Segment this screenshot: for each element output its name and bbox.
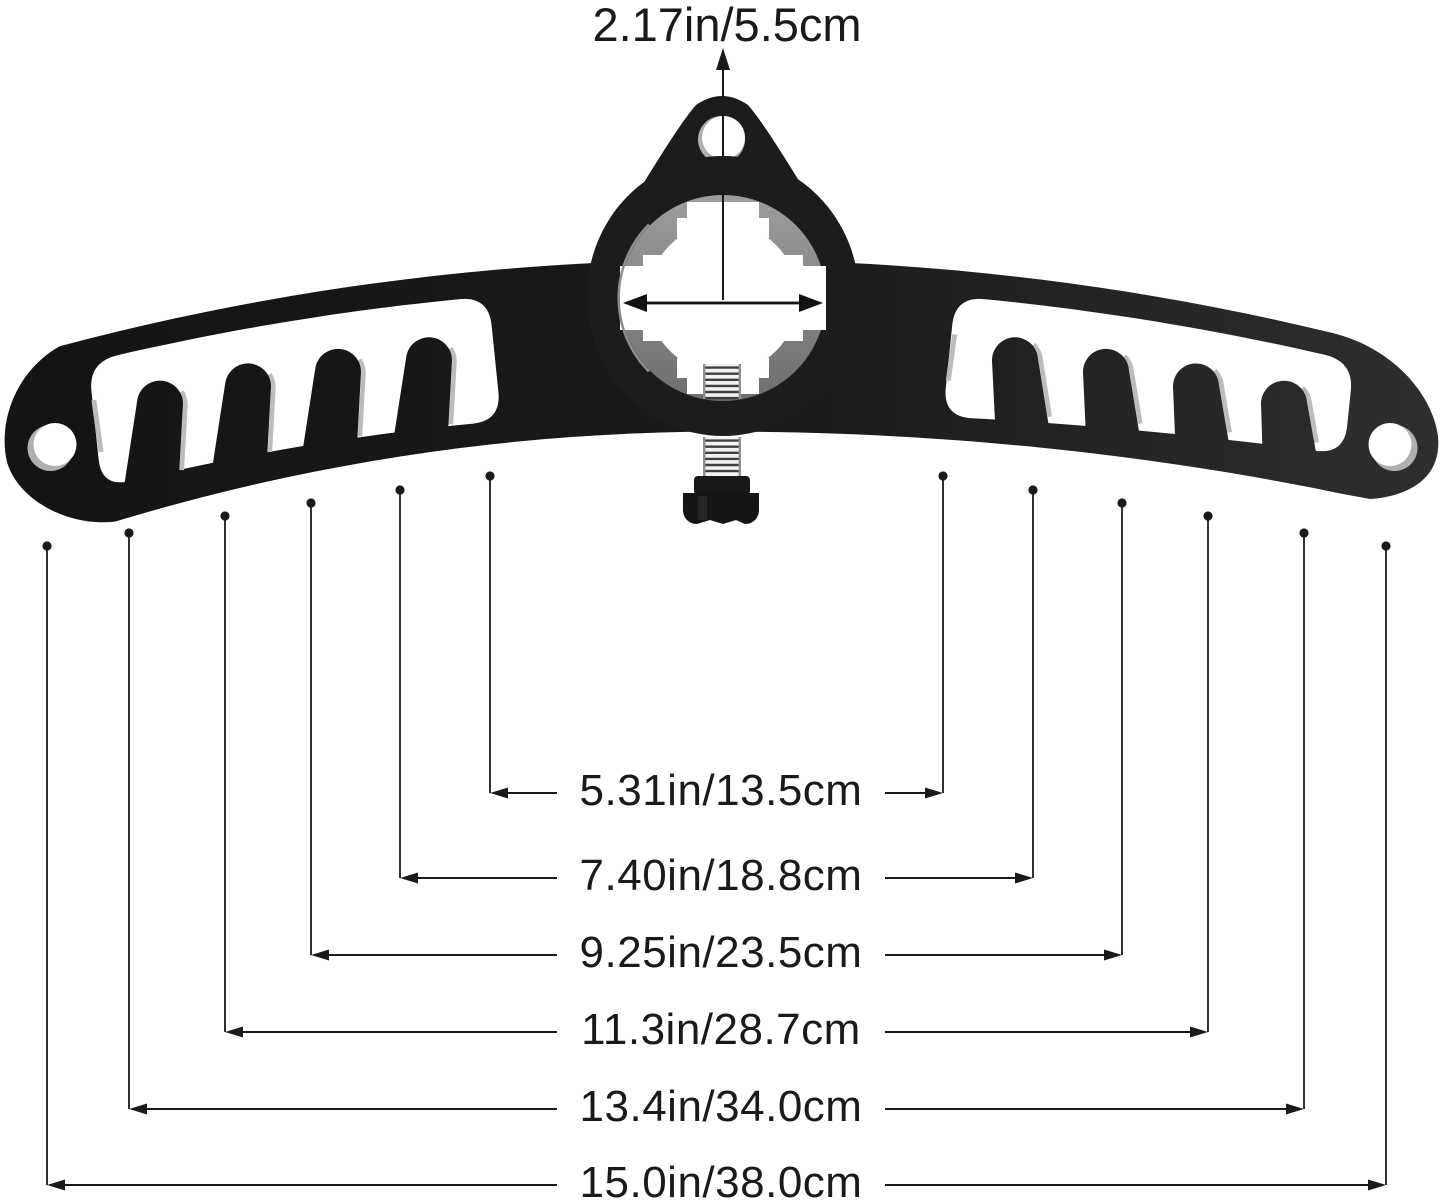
svg-text:9.25in/23.5cm: 9.25in/23.5cm (580, 928, 863, 977)
svg-text:2.17in/5.5cm: 2.17in/5.5cm (592, 0, 861, 51)
svg-text:7.40in/18.8cm: 7.40in/18.8cm (580, 851, 863, 900)
svg-text:15.0in/38.0cm: 15.0in/38.0cm (580, 1158, 863, 1202)
svg-text:13.4in/34.0cm: 13.4in/34.0cm (580, 1082, 863, 1131)
svg-text:5.31in/13.5cm: 5.31in/13.5cm (580, 766, 863, 815)
svg-text:11.3in/28.7cm: 11.3in/28.7cm (581, 1005, 861, 1054)
